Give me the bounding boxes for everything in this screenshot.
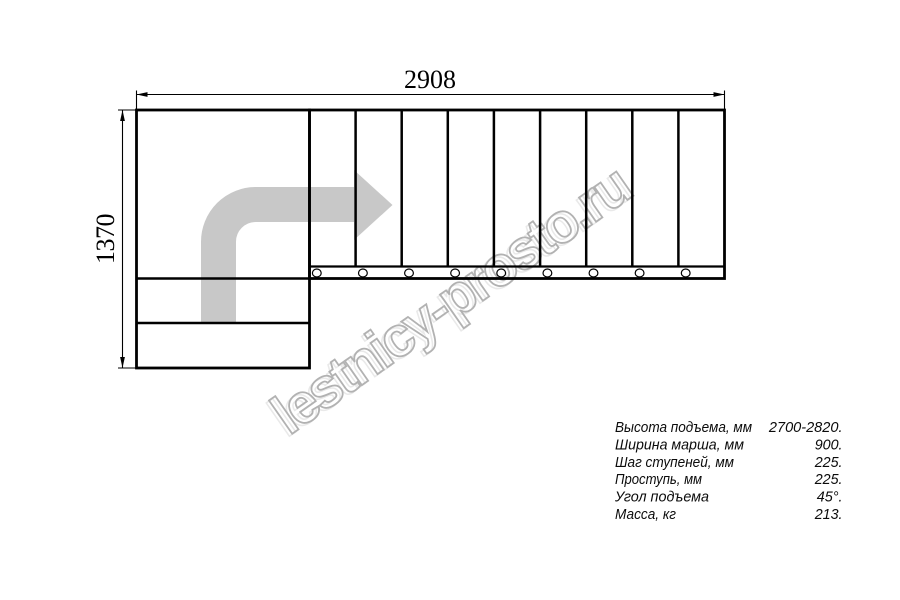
svg-text:213.: 213. — [814, 506, 843, 523]
svg-text:Масса, кг: Масса, кг — [615, 506, 677, 523]
svg-text:225.: 225. — [814, 454, 843, 471]
svg-text:1370: 1370 — [91, 214, 120, 265]
svg-text:Угол подъема: Угол подъема — [614, 489, 709, 506]
svg-text:Высота подъема, мм: Высота подъема, мм — [615, 419, 752, 436]
svg-text:900.: 900. — [815, 436, 843, 453]
svg-text:Проступь, мм: Проступь, мм — [615, 471, 702, 488]
svg-text:Шаг ступеней, мм: Шаг ступеней, мм — [615, 454, 734, 471]
svg-text:45°.: 45°. — [817, 489, 843, 506]
svg-text:Ширина марша, мм: Ширина марша, мм — [615, 436, 744, 453]
svg-text:2700-2820.: 2700-2820. — [768, 419, 843, 436]
svg-text:225.: 225. — [814, 471, 843, 488]
svg-text:2908: 2908 — [404, 65, 456, 94]
